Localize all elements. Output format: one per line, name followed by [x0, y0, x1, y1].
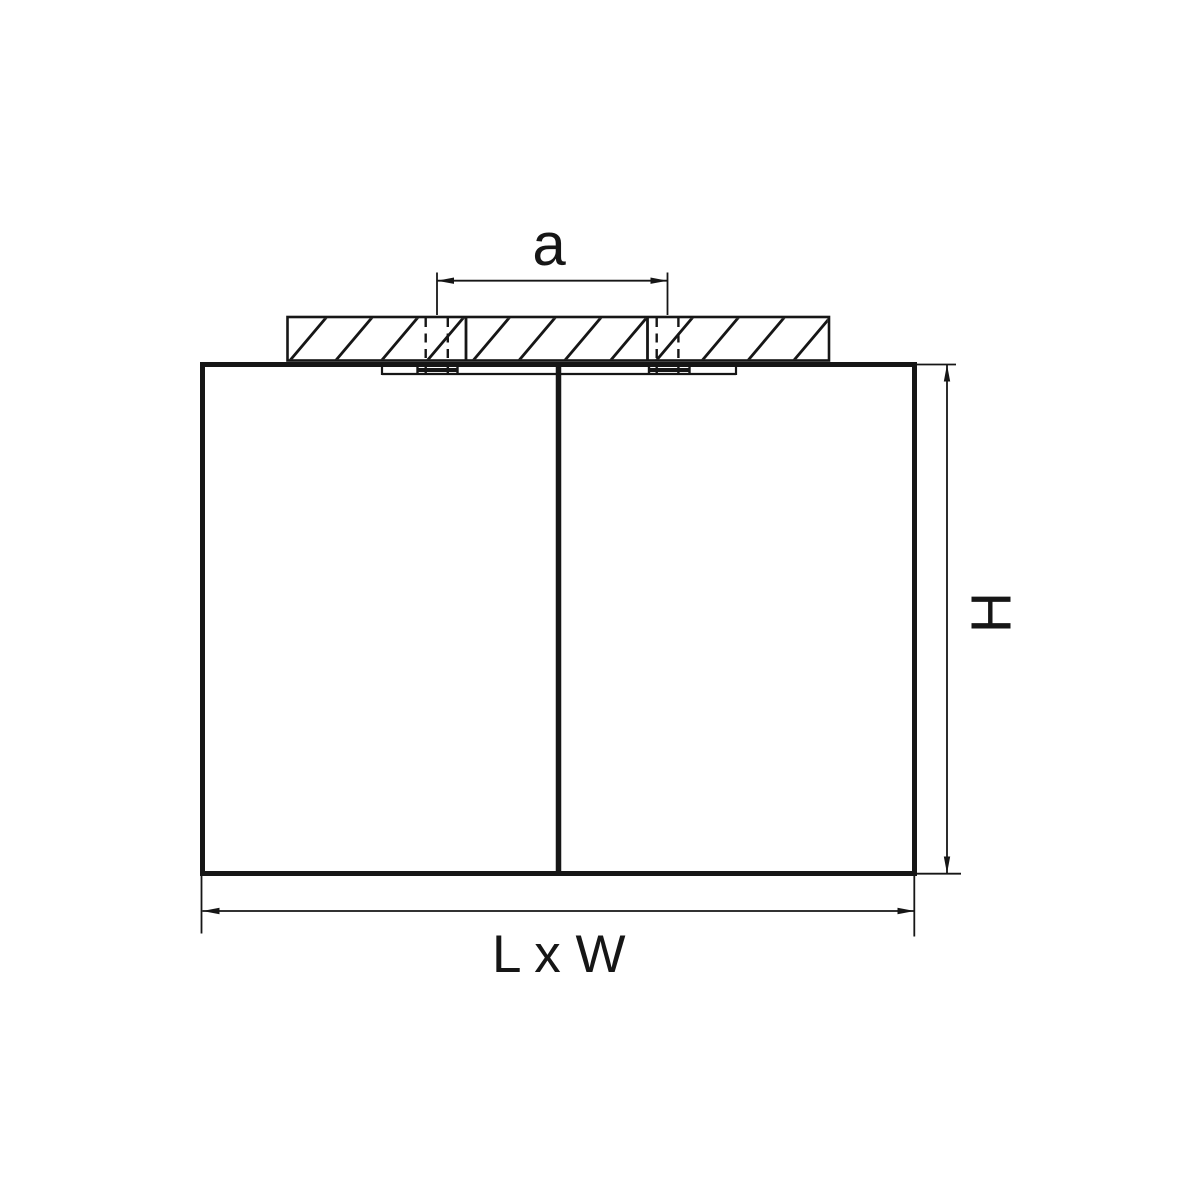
svg-text:H: H	[959, 592, 1023, 633]
svg-text:a: a	[532, 211, 566, 278]
svg-text:L x W: L x W	[492, 925, 625, 984]
